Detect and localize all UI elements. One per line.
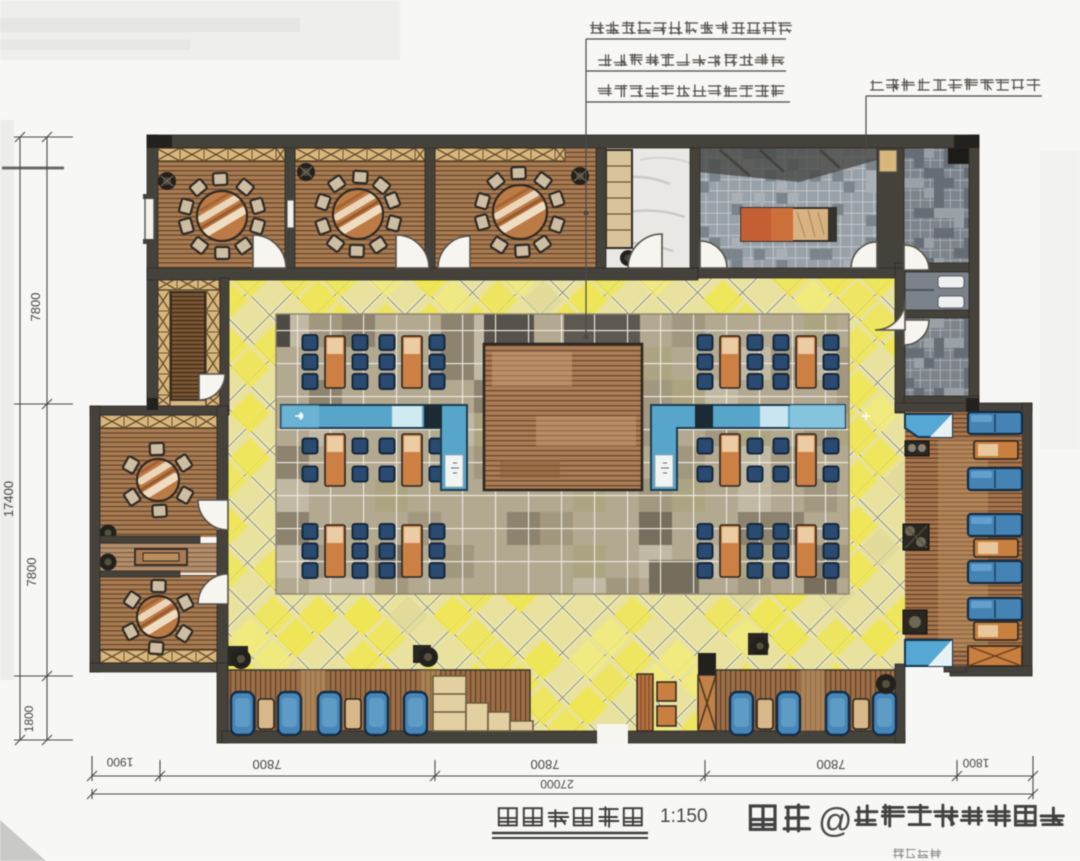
svg-text:@: @	[818, 802, 853, 840]
svg-text:1:150: 1:150	[660, 806, 708, 827]
svg-text:7800: 7800	[531, 757, 560, 772]
svg-text:1800: 1800	[22, 705, 36, 732]
svg-text:7800: 7800	[28, 293, 43, 322]
svg-text:7800: 7800	[817, 757, 846, 772]
svg-text:7800: 7800	[253, 757, 282, 772]
svg-text:1800: 1800	[962, 756, 989, 770]
svg-text:27000: 27000	[540, 777, 574, 791]
svg-text:17400: 17400	[1, 481, 16, 517]
svg-text:7800: 7800	[24, 558, 39, 587]
svg-text:1900: 1900	[106, 755, 133, 769]
